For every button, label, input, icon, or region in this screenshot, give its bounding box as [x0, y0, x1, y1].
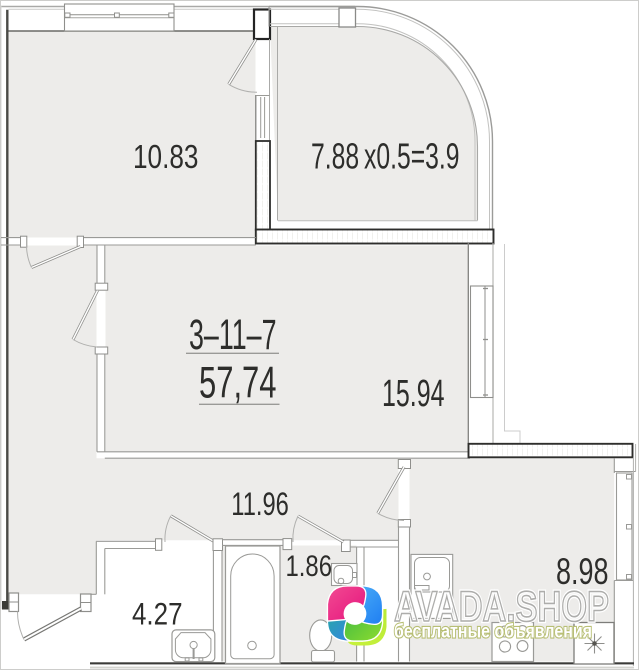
svg-text:57,74: 57,74 [199, 359, 277, 408]
svg-text:11.96: 11.96 [231, 485, 288, 522]
svg-text:10.83: 10.83 [133, 138, 199, 175]
svg-text:7.88 x0.5=3.9: 7.88 x0.5=3.9 [311, 135, 460, 176]
svg-text:3–11–7: 3–11–7 [189, 312, 277, 359]
svg-text:15.94: 15.94 [382, 372, 445, 415]
svg-text:бесплатные объявления: бесплатные объявления [394, 622, 592, 643]
svg-text:4.27: 4.27 [132, 596, 183, 632]
svg-text:1.86: 1.86 [286, 550, 333, 583]
